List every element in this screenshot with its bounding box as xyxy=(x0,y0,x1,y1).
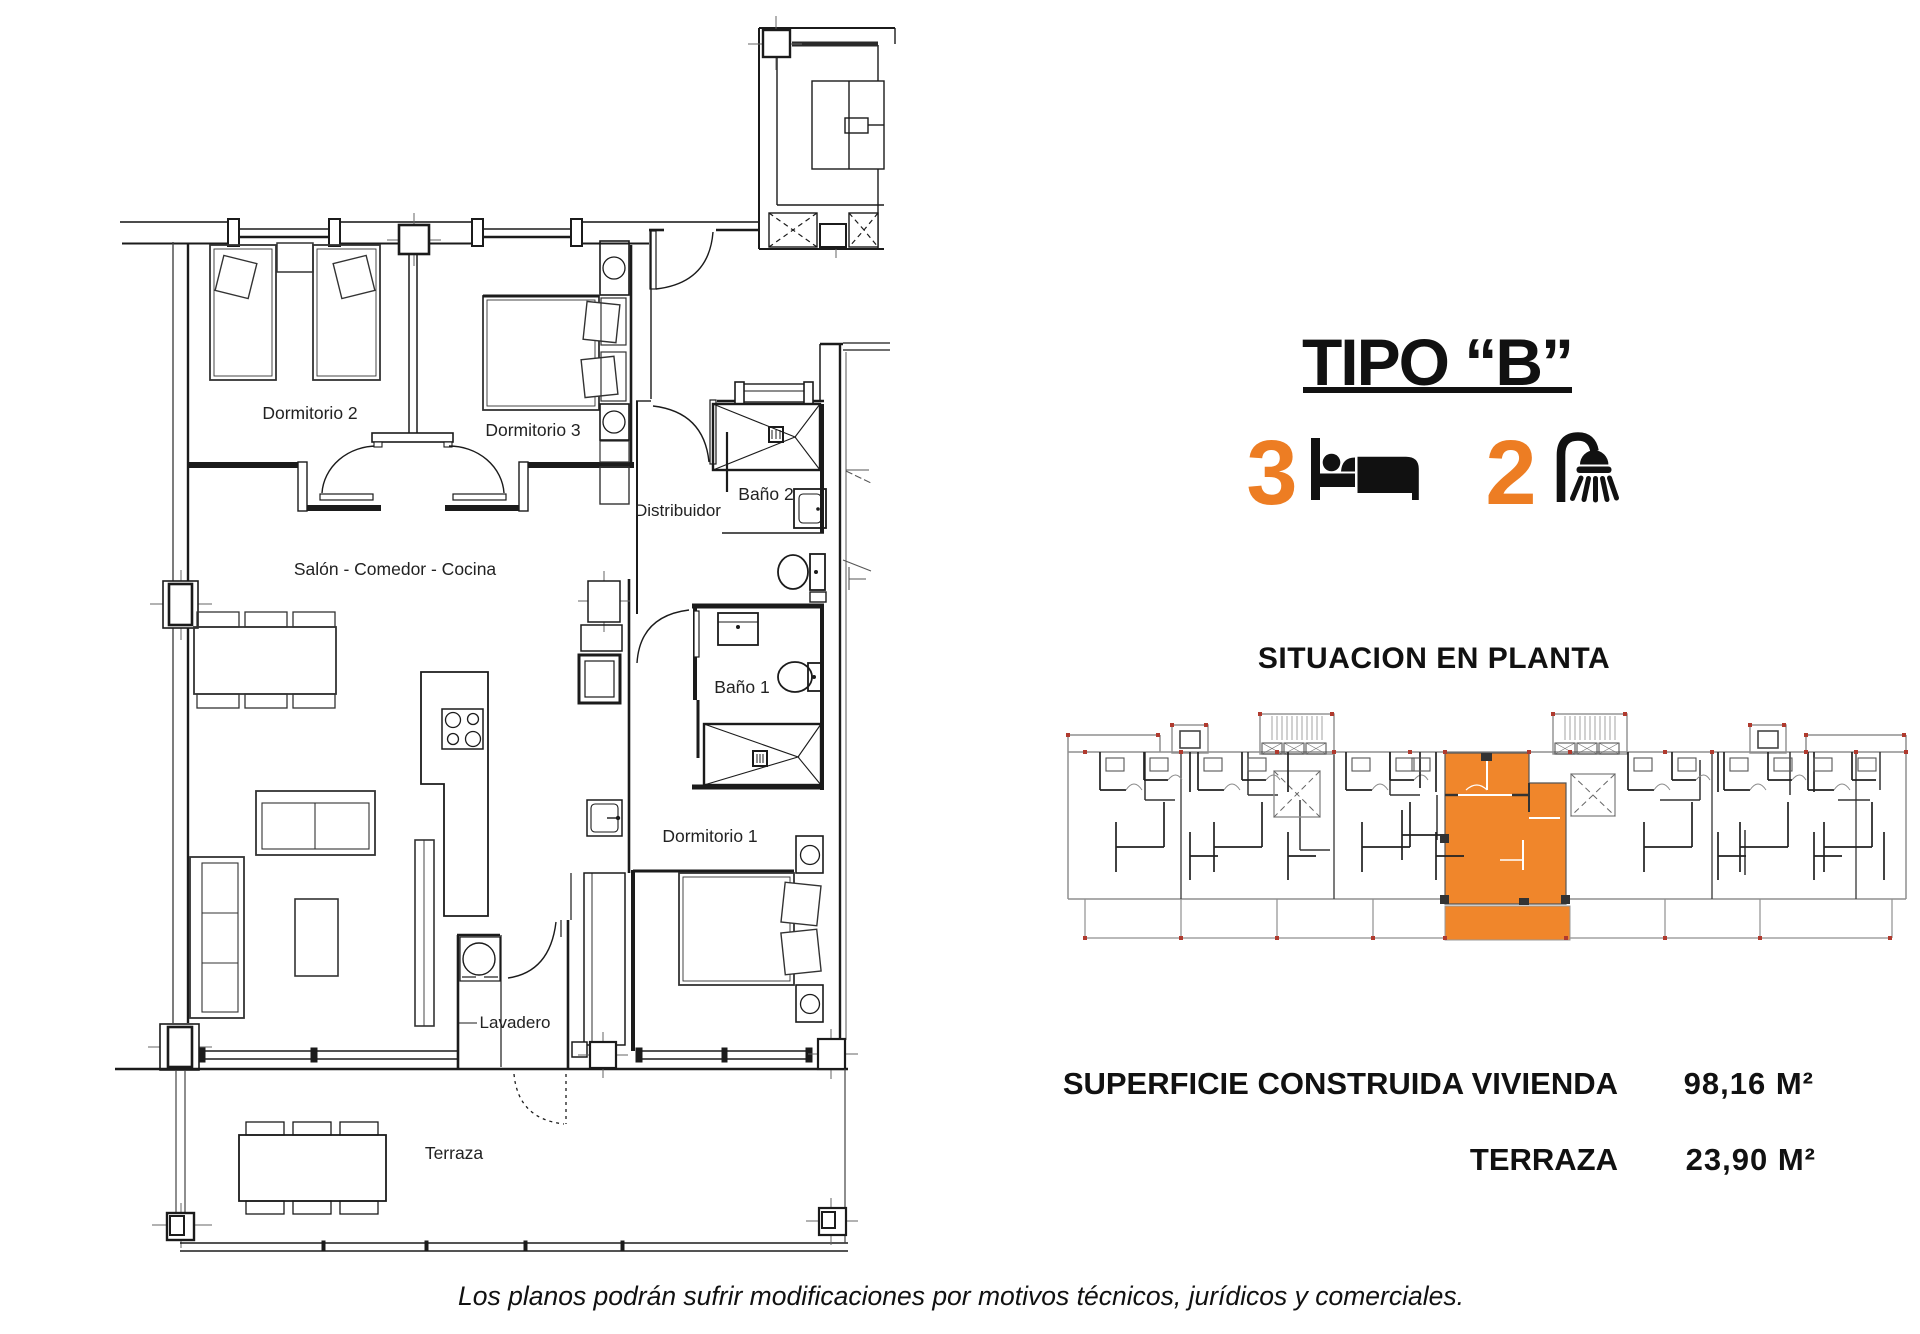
svg-text:Dormitorio 1: Dormitorio 1 xyxy=(662,826,757,846)
svg-text:SUPERFICIE CONSTRUIDA VIVIENDA: SUPERFICIE CONSTRUIDA VIVIENDA xyxy=(1063,1066,1618,1101)
svg-text:Baño 2: Baño 2 xyxy=(738,484,793,504)
svg-text:23,90 M²: 23,90 M² xyxy=(1686,1142,1816,1177)
svg-text:98,16 M²: 98,16 M² xyxy=(1684,1066,1814,1101)
svg-text:3: 3 xyxy=(1246,422,1297,524)
svg-text:Distribuidor: Distribuidor xyxy=(635,501,721,520)
svg-text:Lavadero: Lavadero xyxy=(480,1013,551,1032)
svg-text:SITUACION EN PLANTA: SITUACION EN PLANTA xyxy=(1258,642,1610,675)
svg-text:Terraza: Terraza xyxy=(425,1143,484,1163)
svg-text:Dormitorio 3: Dormitorio 3 xyxy=(485,420,580,440)
svg-text:TERRAZA: TERRAZA xyxy=(1470,1142,1618,1177)
svg-text:Dormitorio 2: Dormitorio 2 xyxy=(262,403,357,423)
svg-text:Salón - Comedor - Cocina: Salón - Comedor - Cocina xyxy=(294,559,497,579)
svg-text:2: 2 xyxy=(1485,422,1536,524)
svg-text:Baño 1: Baño 1 xyxy=(714,677,769,697)
svg-text:Los planos podrán sufrir modif: Los planos podrán sufrir modificaciones … xyxy=(458,1281,1464,1311)
